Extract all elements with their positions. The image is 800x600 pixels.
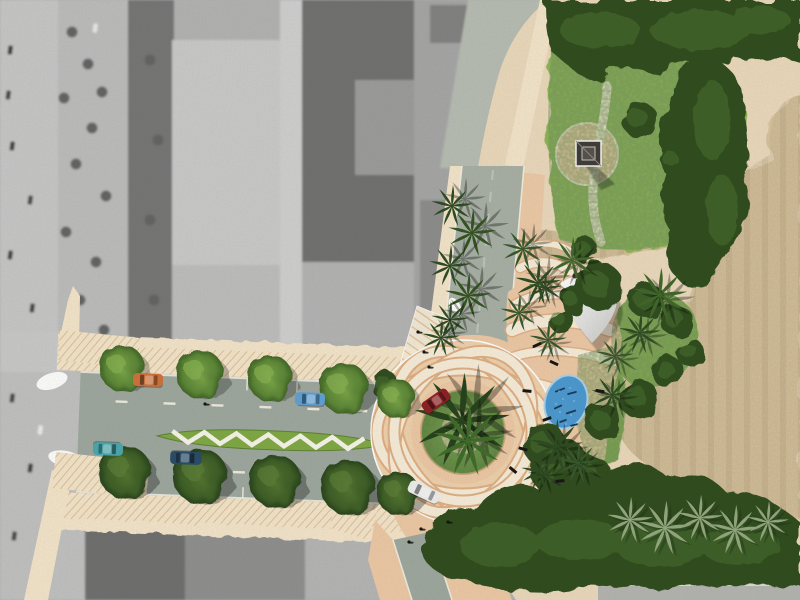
scene-svg bbox=[0, 0, 800, 600]
site-plan-rendering bbox=[0, 0, 800, 600]
grain-overlay bbox=[0, 0, 800, 600]
